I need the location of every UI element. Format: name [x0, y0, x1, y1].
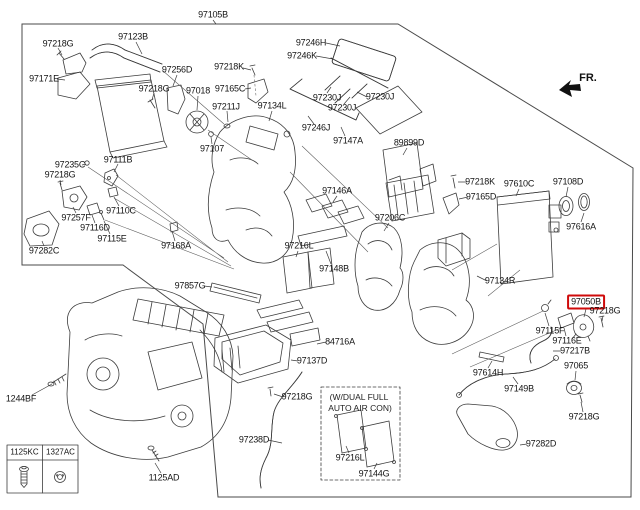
- part-label-97216l-32[interactable]: 97216L: [285, 242, 314, 251]
- part-label-97246h-12[interactable]: 97246H: [296, 39, 326, 48]
- part-label-97115e-26[interactable]: 97115E: [97, 235, 126, 244]
- part-label-97246j-17[interactable]: 97246J: [302, 124, 330, 133]
- part-label-97216l-55[interactable]: 97216L: [336, 454, 365, 463]
- part-label-97107-11[interactable]: 97107: [200, 145, 224, 154]
- part-label-97614h-46[interactable]: 97614H: [473, 369, 503, 378]
- part-label-84716a-51[interactable]: 84716A: [325, 338, 355, 347]
- conditional-note-line1: (W/DUAL FULL: [330, 392, 389, 402]
- part-label-97165d-35[interactable]: 97165D: [466, 193, 496, 202]
- part-label-97146a-30[interactable]: 97146A: [322, 187, 352, 196]
- part-label-97218g-41[interactable]: 97218G: [590, 307, 621, 316]
- part-label-1244bf-50[interactable]: 1244BF: [6, 395, 36, 404]
- part-label-97218k-7[interactable]: 97218K: [214, 63, 244, 72]
- part-label-97147a-18[interactable]: 97147A: [333, 137, 363, 146]
- part-label-97238d-54[interactable]: 97238D: [239, 436, 269, 445]
- part-label-97108d-37[interactable]: 97108D: [553, 178, 583, 187]
- part-label-97144g-56[interactable]: 97144G: [359, 470, 390, 479]
- part-label-97218g-22[interactable]: 97218G: [45, 171, 76, 180]
- part-label-97857g-29[interactable]: 97857G: [175, 282, 206, 291]
- part-label-89899d-19[interactable]: 89899D: [394, 139, 424, 148]
- part-label-97149b-47[interactable]: 97149B: [504, 385, 534, 394]
- part-label-97111b-21[interactable]: 97111B: [104, 156, 133, 165]
- part-label-97165c-8[interactable]: 97165C: [215, 85, 245, 94]
- part-label-97168a-28[interactable]: 97168A: [161, 242, 191, 251]
- part-label-97610c-36[interactable]: 97610C: [504, 180, 534, 189]
- part-label-97282d-49[interactable]: 97282D: [526, 440, 556, 449]
- fastener-code-1327ac: 1327AC: [46, 448, 75, 457]
- part-label-97218g-53[interactable]: 97218G: [282, 393, 313, 402]
- part-label-97115f-42[interactable]: 97115F: [536, 327, 565, 336]
- fastener-code-1125kc: 1125KC: [10, 448, 38, 457]
- part-label-97218g-48[interactable]: 97218G: [569, 413, 600, 422]
- part-label-97105b-0[interactable]: 97105B: [198, 11, 228, 20]
- part-label-97110c-23[interactable]: 97110C: [106, 207, 136, 216]
- part-label-97116e-43[interactable]: 97116E: [552, 337, 581, 346]
- part-label-97246k-13[interactable]: 97246K: [287, 52, 317, 61]
- part-label-97257f-24[interactable]: 97257F: [61, 214, 90, 223]
- part-label-97065-45[interactable]: 97065: [564, 362, 588, 371]
- parts-diagram: FR. (W/DUAL FULL AUTO AIR CON) 1125KC 13…: [0, 0, 640, 510]
- fr-direction-label: FR.: [579, 72, 597, 84]
- part-label-97171e-3[interactable]: 97171E: [29, 75, 59, 84]
- part-label-97256d-4[interactable]: 97256D: [162, 66, 192, 75]
- part-label-97218k-34[interactable]: 97218K: [465, 178, 495, 187]
- part-label-1125ad-57[interactable]: 1125AD: [149, 474, 180, 483]
- part-label-97134r-39[interactable]: 97134R: [485, 277, 515, 286]
- part-label-97018-6[interactable]: 97018: [186, 87, 210, 96]
- part-label-97230j-16[interactable]: 97230J: [328, 104, 356, 113]
- part-label-97206c-31[interactable]: 97206C: [375, 214, 405, 223]
- part-label-97137d-52[interactable]: 97137D: [297, 357, 327, 366]
- part-label-97218g-1[interactable]: 97218G: [43, 40, 74, 49]
- part-label-97218g-5[interactable]: 97218G: [139, 85, 170, 94]
- part-label-97134l-10[interactable]: 97134L: [258, 102, 287, 111]
- part-label-97211j-9[interactable]: 97211J: [212, 103, 240, 112]
- part-label-97116d-25[interactable]: 97116D: [80, 224, 110, 233]
- part-label-97123b-2[interactable]: 97123B: [118, 33, 148, 42]
- conditional-note-line2: AUTO AIR CON): [328, 403, 392, 413]
- part-label-97230j-15[interactable]: 97230J: [366, 93, 394, 102]
- labels-layer: FR. (W/DUAL FULL AUTO AIR CON) 1125KC 13…: [0, 0, 640, 510]
- part-label-97148b-33[interactable]: 97148B: [319, 265, 349, 274]
- part-label-97217b-44[interactable]: 97217B: [560, 347, 590, 356]
- part-label-97616a-38[interactable]: 97616A: [566, 223, 596, 232]
- part-label-97235c-20[interactable]: 97235C: [55, 161, 85, 170]
- part-label-97282c-27[interactable]: 97282C: [29, 247, 59, 256]
- part-label-97230j-14[interactable]: 97230J: [313, 94, 341, 103]
